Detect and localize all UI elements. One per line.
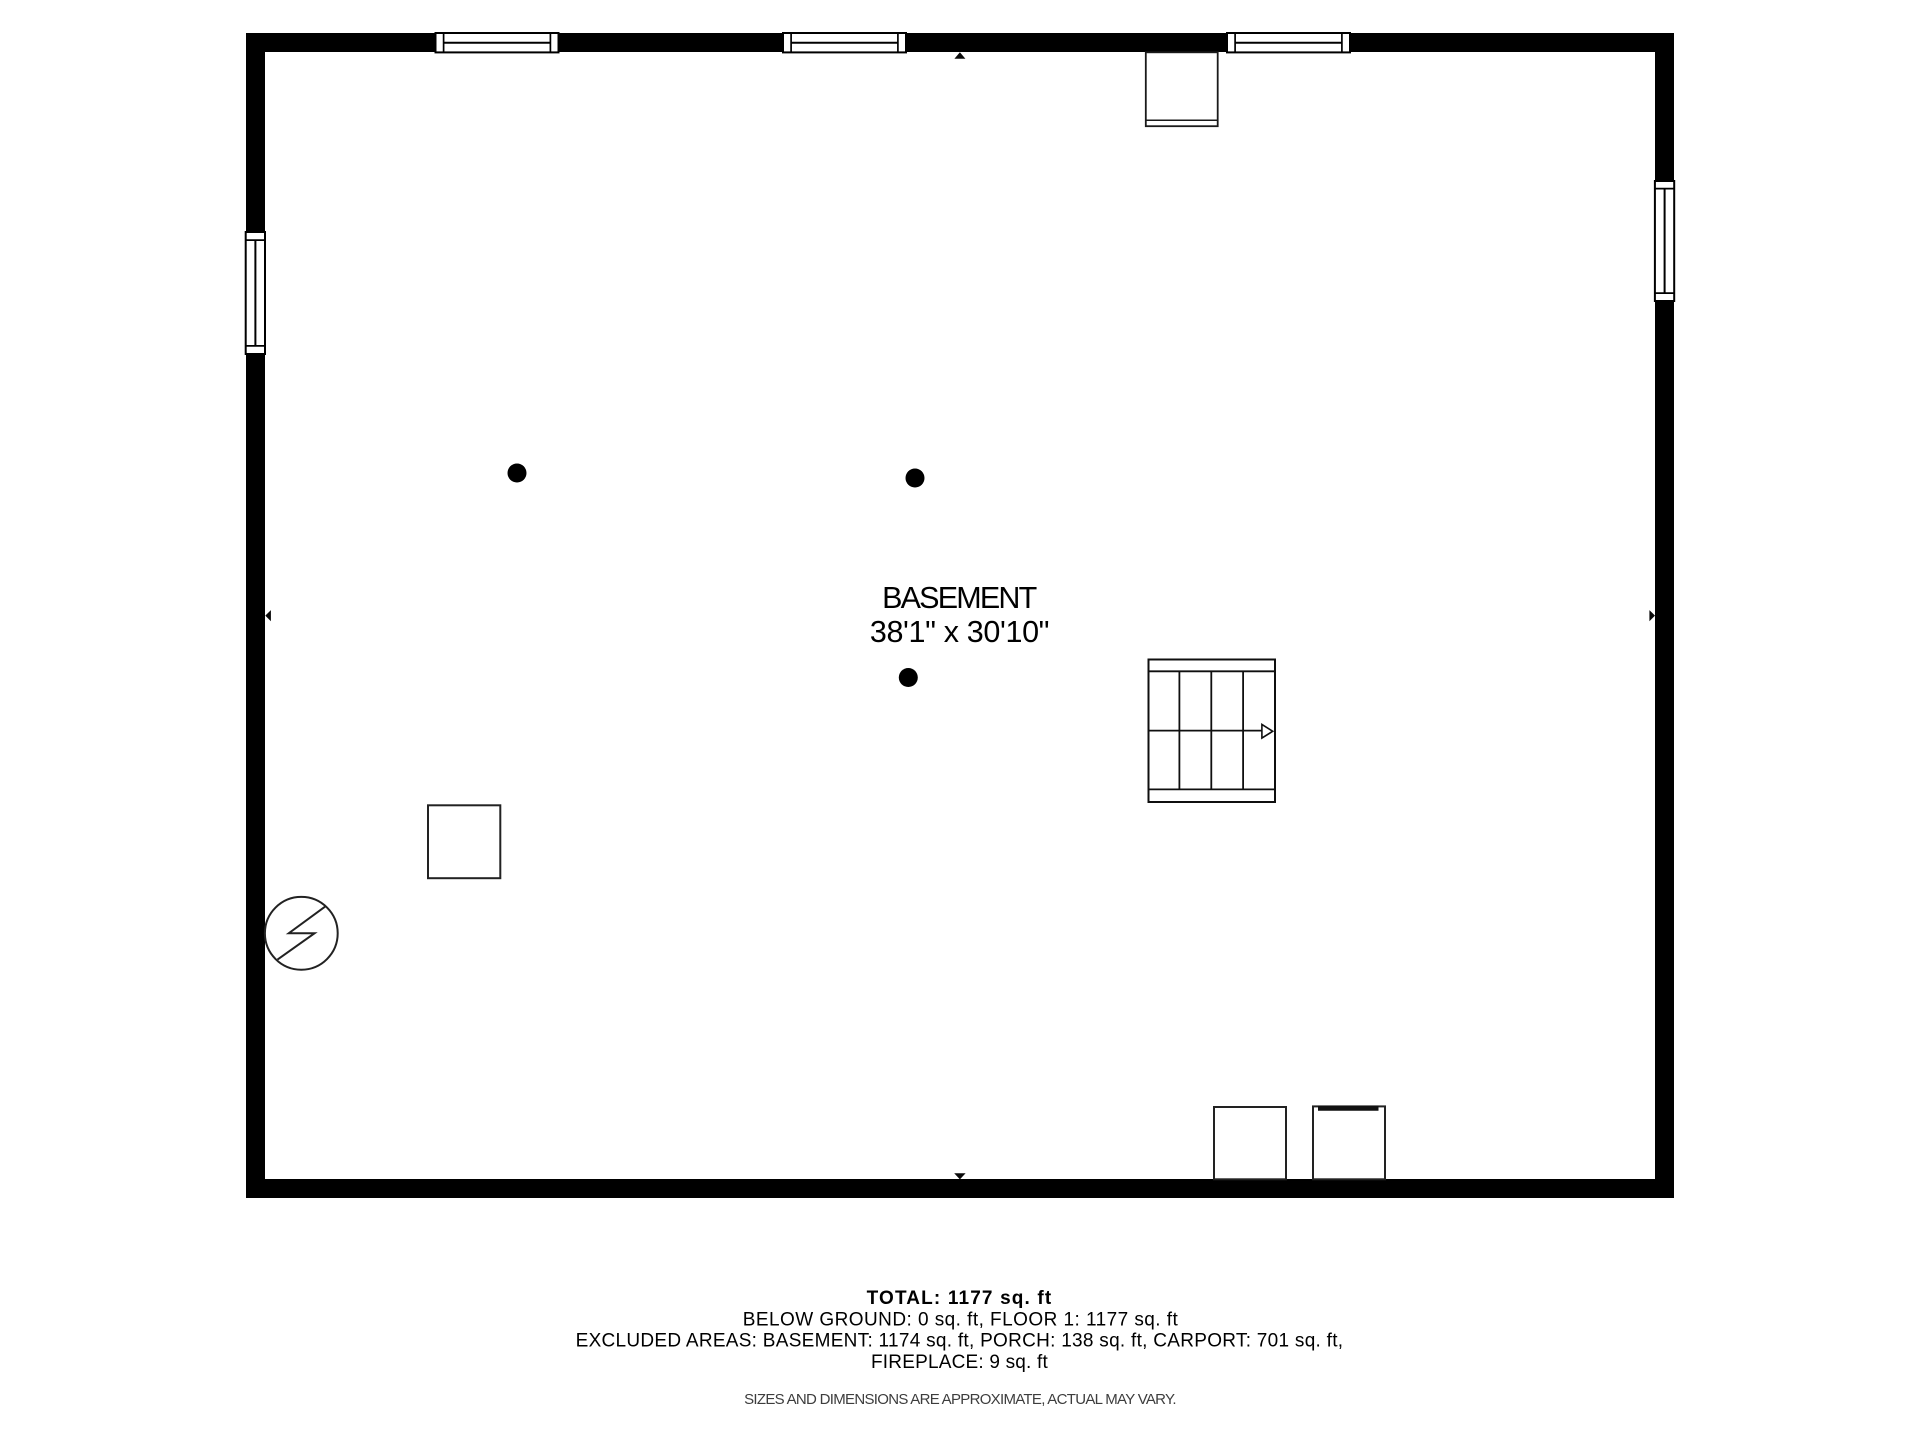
svg-text:EXCLUDED AREAS: BASEMENT: 1174: EXCLUDED AREAS: BASEMENT: 1174 sq. ft, P… bbox=[576, 1331, 1344, 1352]
svg-text:38'1" x 30'10": 38'1" x 30'10" bbox=[870, 615, 1049, 649]
svg-text:BASEMENT: BASEMENT bbox=[882, 581, 1037, 615]
svg-text:BELOW GROUND: 0 sq. ft, FLOOR: BELOW GROUND: 0 sq. ft, FLOOR 1: 1177 sq… bbox=[743, 1309, 1179, 1330]
svg-text:FIREPLACE: 9 sq. ft: FIREPLACE: 9 sq. ft bbox=[871, 1352, 1048, 1373]
svg-text:SIZES AND DIMENSIONS ARE APPRO: SIZES AND DIMENSIONS ARE APPROXIMATE, AC… bbox=[744, 1391, 1176, 1408]
svg-text:TOTAL: 1177 sq. ft: TOTAL: 1177 sq. ft bbox=[867, 1288, 1053, 1309]
